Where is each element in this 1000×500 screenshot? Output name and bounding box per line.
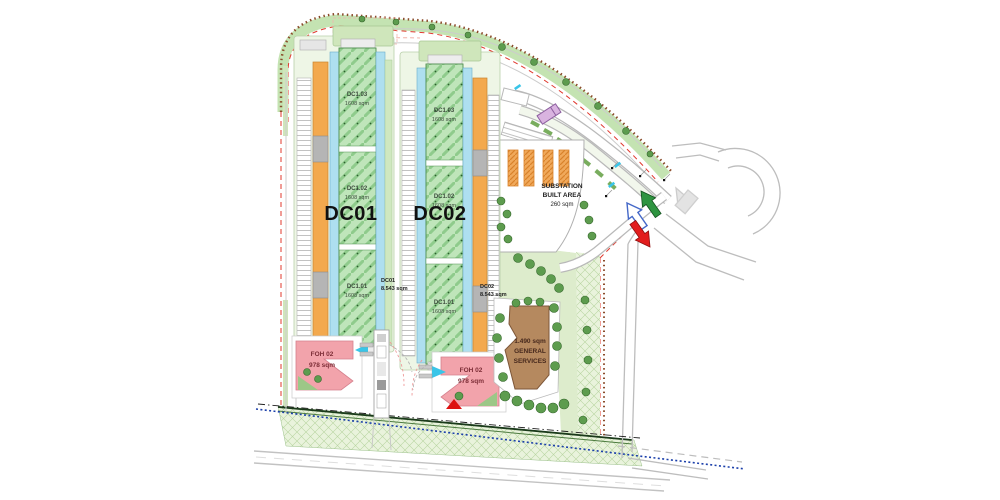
tree-icon [493, 334, 502, 343]
dc02-area-line1: DC02 [480, 284, 494, 290]
foh-left-name: FOH 02 [311, 351, 334, 358]
tree-icon [582, 388, 590, 396]
tree-icon [497, 223, 505, 231]
general-services-building: 1.490 sqm GENERAL SERVICES [494, 298, 560, 404]
dc02-plant-block-1 [473, 150, 487, 176]
dc01-hall-gap-1 [339, 146, 376, 152]
tree-icon [550, 304, 559, 313]
foh-right-name: FOH 02 [460, 367, 483, 374]
tree-icon [429, 24, 435, 30]
dc01-north-cap [341, 39, 375, 48]
dc01-east-corridor [376, 52, 385, 345]
dc01-plant-block-1 [313, 136, 328, 162]
tree-icon [536, 298, 544, 306]
tree-icon [588, 232, 596, 240]
dc01-hall2-area: 1608 sqm [345, 195, 370, 201]
tree-icon [514, 254, 523, 263]
tree-icon [499, 44, 506, 51]
dc01-hall3-name: DC1.03 [347, 92, 368, 98]
dc01-hall3-area: 1608 sqm [345, 101, 370, 107]
tree-icon [496, 314, 505, 323]
foh-left-gate-bar-2 [360, 352, 373, 356]
roundabout-inner [728, 166, 764, 216]
tree-icon [579, 416, 587, 424]
dc01-area-line2: 8.543 sqm [381, 286, 408, 292]
tree-icon [465, 32, 471, 38]
dc02-hall1-area: 1608 sqm [432, 309, 457, 315]
north-road-edge [672, 143, 726, 150]
foh-right-building: FOH 02 978 sqm [419, 352, 506, 412]
tree-icon [585, 216, 593, 224]
dc01-hall-gap-2 [339, 244, 376, 250]
dc02-hall1-name: DC1.01 [434, 300, 455, 306]
dc02-hall3-area: 1608 sqm [432, 117, 457, 123]
hammerhead-turnaround [501, 88, 529, 106]
dc01-hall1-name: DC1.01 [347, 284, 368, 290]
tree-icon [512, 299, 520, 307]
tree-icon [304, 369, 311, 376]
tree-icon [559, 399, 569, 409]
site-plan-canvas: SUBSTATION BUILT AREA 260 sqm DC1.03 160… [0, 0, 1000, 500]
gate-island-2 [377, 362, 386, 376]
tree-icon [315, 376, 322, 383]
tree-icon [548, 403, 558, 413]
tree-icon [553, 342, 562, 351]
tree-icon [526, 260, 535, 269]
tree-icon [393, 19, 399, 25]
tree-icon [500, 391, 510, 401]
tree-icon [547, 275, 556, 284]
general-services-label-line2: GENERAL [514, 348, 546, 355]
north-road-edge-2 [676, 155, 719, 161]
dc02-building: DC1.03 1608 sqm DC1.02 1608 sqm DC1.01 1… [400, 41, 500, 370]
tree-icon [536, 403, 546, 413]
dc01-plant-strip [313, 62, 328, 342]
dc02-hall3-name: DC1.03 [434, 108, 455, 114]
foh-right-gate-bar-2 [419, 374, 432, 378]
roundabout-outer [718, 148, 780, 234]
tree-icon [537, 267, 546, 276]
tree-icon [499, 373, 508, 382]
tree-icon [531, 59, 538, 66]
mid-green-area [496, 252, 570, 302]
dc01-west-corridor [330, 52, 339, 345]
substation-area: SUBSTATION BUILT AREA 260 sqm [498, 140, 584, 252]
tree-icon [555, 284, 564, 293]
guard-booth [377, 346, 386, 358]
dc01-hall1-area: 1608 sqm [345, 293, 370, 299]
dc01-building: DC1.03 1608 sqm DC1.02 1608 sqm DC1.01 1… [294, 26, 394, 354]
tree-icon [584, 356, 592, 364]
dc01-plant-block-2 [313, 272, 328, 298]
foh-left-building: FOH 02 978 sqm [292, 336, 373, 398]
dc02-hall-gap-1 [426, 160, 463, 166]
dc01-west-parking-strip [297, 78, 311, 340]
dc01-east-green-strip [385, 60, 392, 345]
dc02-plant-strip [473, 78, 487, 358]
tree-icon [455, 392, 463, 400]
general-services-label-line3: SERVICES [514, 358, 547, 365]
tree-icon [647, 151, 653, 157]
dc01-area-line1: DC01 [381, 278, 395, 284]
tree-icon [551, 362, 560, 371]
dc02-big-label: DC02 [413, 203, 466, 225]
tree-icon [563, 79, 570, 86]
substation-label-line2: BUILT AREA [543, 192, 582, 199]
gate-island-3 [377, 394, 386, 408]
dc01-hall2-name: DC1.02 [347, 186, 368, 192]
tree-icon [583, 326, 591, 334]
tree-icon [503, 210, 511, 218]
tree-icon [524, 297, 532, 305]
foh-left-area: 978 sqm [309, 362, 335, 369]
dc01-north-core [300, 40, 326, 50]
east-road-edge [622, 244, 628, 458]
tree-icon [623, 128, 630, 135]
southeast-road-edge [666, 214, 756, 262]
dc01-big-label: DC01 [324, 203, 377, 225]
substation-label-line1: SUBSTATION [541, 183, 583, 190]
gate-island-1 [377, 334, 386, 342]
dc02-area-line2: 8.543 sqm [480, 292, 507, 298]
tree-icon [553, 323, 562, 332]
tree-icon [581, 296, 589, 304]
dc02-north-cap [428, 55, 462, 64]
tree-icon [504, 235, 512, 243]
dc02-hall2-name: DC1.02 [434, 194, 455, 200]
tree-icon [359, 16, 365, 22]
tree-icon [497, 197, 505, 205]
dc02-hall-gap-2 [426, 258, 463, 264]
foh-left-gate-bar-1 [360, 343, 373, 347]
tree-icon [524, 400, 534, 410]
gate-barrier-block [377, 380, 386, 390]
south-stub-road-2 [632, 468, 708, 479]
tree-icon [495, 354, 504, 363]
substation-area-value: 260 sqm [550, 202, 573, 208]
general-services-area-value: 1.490 sqm [514, 338, 546, 345]
tree-icon [512, 396, 522, 406]
tree-icon [595, 103, 602, 110]
east-road-edge-2 [632, 242, 638, 452]
south-road-edge-2 [254, 463, 664, 491]
tree-icon [580, 201, 588, 209]
foh-right-area: 978 sqm [458, 378, 484, 385]
